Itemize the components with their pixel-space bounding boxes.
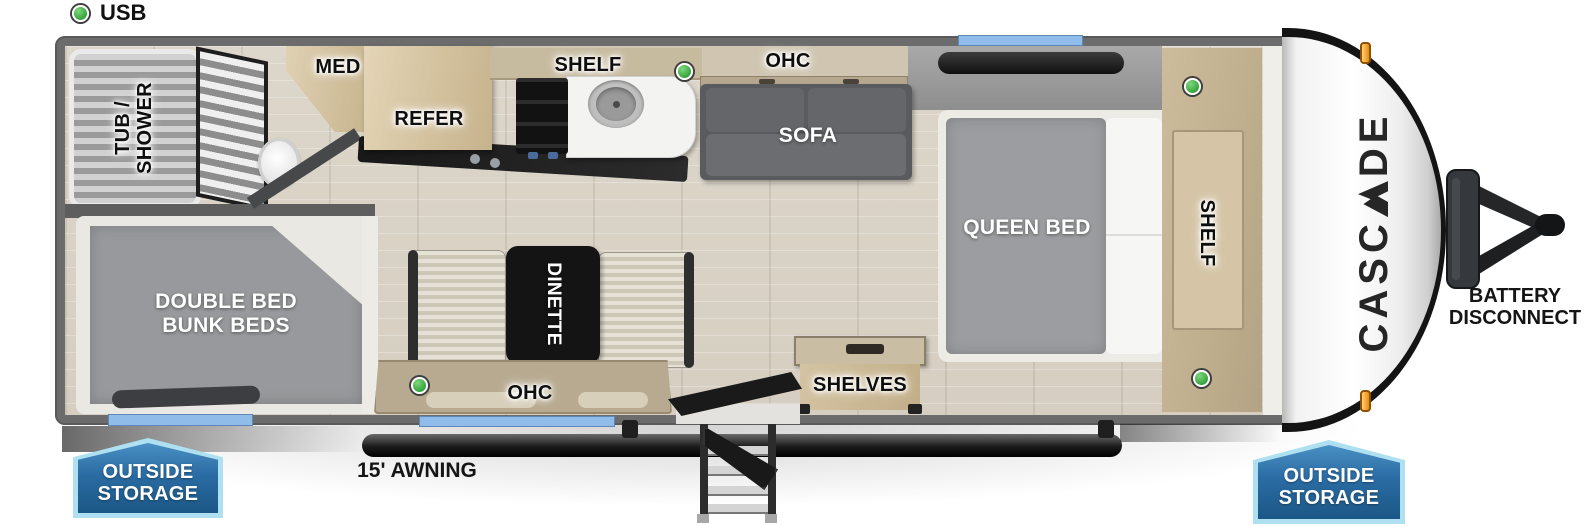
usb-legend-dot [72, 5, 89, 22]
bunk-bed-label-line2: BUNK BEDS [162, 314, 290, 338]
dinette-bench-right-arm [684, 252, 694, 368]
dinette-ohc-label: OHC [498, 382, 562, 404]
usb-marker-bedroom-bottom [1193, 370, 1210, 387]
brand-logo: CASC DE [1352, 97, 1396, 367]
refrigerator [364, 46, 492, 150]
battery-box-highlight [1452, 178, 1460, 280]
refer-handle-2 [490, 158, 500, 168]
step-tread-4 [708, 504, 768, 514]
queen-bed-pillows [1106, 118, 1162, 354]
dinette-bench-left [408, 250, 506, 368]
awning-bracket-right [1098, 420, 1114, 438]
clearance-light-top [1360, 42, 1371, 64]
clearance-light-bottom [1360, 390, 1371, 412]
hitch-assembly [1443, 158, 1568, 298]
shelves-label: SHELVES [812, 374, 908, 396]
sink-drain [613, 101, 620, 108]
entry-steps [690, 424, 790, 524]
step-foot-left [697, 514, 709, 523]
window-dinette [419, 416, 615, 427]
dinette-ohc-cushion-2 [578, 392, 648, 408]
bedroom-shelf-label-text: SHELF [1196, 199, 1218, 266]
shelves-cabinet-handle [846, 344, 884, 354]
battery-disconnect-line2: DISCONNECT [1449, 307, 1581, 329]
front-interior-wall [1263, 46, 1283, 415]
kitchen-shelf-label: SHELF [548, 54, 628, 76]
sofa-label: SOFA [776, 124, 840, 148]
bunk-bed-label-line1: DOUBLE BED [155, 290, 297, 314]
hitch-arm-top [1479, 186, 1543, 232]
tub-shower-label-line1: TUB / [112, 101, 134, 155]
tub-shower-label-line2: SHOWER [134, 82, 156, 174]
underbody-shadow-right [1120, 424, 1280, 442]
step-tread-3 [708, 486, 768, 496]
open-door-panel [702, 426, 778, 490]
brand-logo-suffix: DE [1352, 112, 1397, 178]
dinette-bench-left-arm [408, 250, 418, 368]
refer-label: REFER [384, 108, 474, 130]
tv-unit [938, 52, 1124, 74]
tub-shower-label: TUB / SHOWER [108, 48, 160, 208]
shelves-cabinet-foot-right [908, 404, 922, 414]
stove-knob-1 [528, 152, 538, 159]
window-top [958, 35, 1083, 46]
usb-legend-label: USB [100, 0, 170, 26]
hitch-coupler [1535, 214, 1565, 236]
awning-label: 15' AWNING [352, 460, 482, 482]
med-label: MED [306, 56, 370, 78]
pillow-seam [1106, 234, 1162, 236]
refer-handle-1 [470, 154, 480, 164]
floorplan-canvas: TUB / SHOWER MED DOUBLE BED BUNK BEDS RE… [0, 0, 1584, 526]
brand-logo-prefix: CASC [1352, 219, 1397, 352]
usb-marker-dinette [411, 377, 428, 394]
outside-storage-right-line2: STORAGE [1279, 487, 1380, 509]
battery-disconnect-label: BATTERY DISCONNECT [1446, 284, 1584, 330]
outside-storage-right-line1: OUTSIDE [1284, 465, 1375, 487]
step-foot-right [765, 514, 777, 523]
outside-storage-left-line2: STORAGE [98, 483, 199, 505]
window-bunk [108, 414, 253, 426]
stove [516, 78, 568, 154]
bunk-bed-label: DOUBLE BED BUNK BEDS [126, 286, 326, 342]
shower-door [196, 46, 268, 211]
dinette-label: DINETTE [541, 249, 565, 359]
hitch-arm-bottom [1479, 220, 1543, 274]
bunk-right-wall [362, 216, 378, 414]
dinette-bench-right [598, 252, 694, 368]
outside-storage-left-line1: OUTSIDE [103, 461, 194, 483]
mountain-icon [1358, 181, 1388, 217]
bedroom-shelf-label: SHELF [1195, 188, 1219, 278]
usb-marker-bedroom-top [1184, 78, 1201, 95]
battery-box [1447, 170, 1479, 288]
awning-bracket-left [622, 420, 638, 438]
usb-marker-kitchen [676, 63, 693, 80]
underbody-shadow-left [62, 426, 362, 452]
queen-bed-label: QUEEN BED [962, 216, 1092, 240]
battery-disconnect-line1: BATTERY [1469, 285, 1561, 307]
living-ohc-label: OHC [756, 50, 820, 72]
dinette-label-text: DINETTE [541, 262, 565, 345]
stove-knob-2 [548, 152, 558, 159]
